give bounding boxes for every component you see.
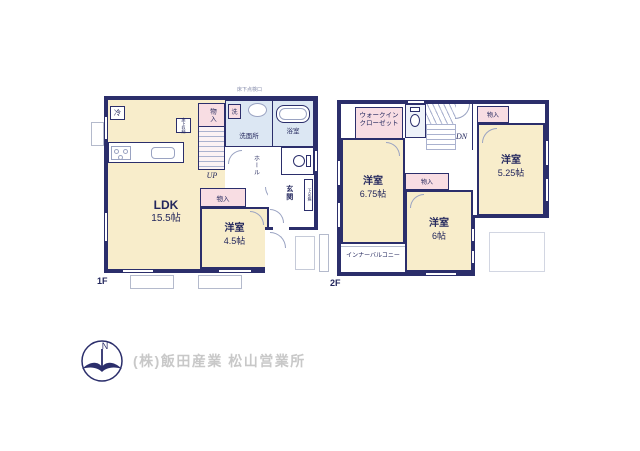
western-675-name: 洋室	[343, 176, 403, 189]
door-arc	[455, 104, 470, 119]
room-toilet-2f	[405, 104, 426, 138]
laundry-space: 洗	[228, 104, 241, 119]
door-arc	[410, 194, 424, 208]
closet-northeast: 物入	[477, 106, 509, 123]
closet-south: 物入	[200, 188, 246, 207]
shoe-box-label: 下足箱	[306, 188, 312, 201]
toilet-icon	[410, 114, 420, 127]
terrace-step	[130, 275, 174, 289]
western-6-size: 6帖	[407, 231, 471, 242]
western-525-name: 洋室	[479, 155, 543, 168]
refrigerator-label: 冷	[114, 108, 121, 118]
ldk-size: 15.5帖	[126, 213, 206, 226]
shoe-box: 下足箱	[304, 179, 313, 211]
exterior-notch	[472, 215, 549, 276]
window-marker	[104, 212, 108, 242]
western-room-size: 4.5帖	[202, 236, 267, 247]
window-marker	[218, 269, 252, 273]
window-marker	[407, 100, 425, 104]
floor-1-label: 1F	[97, 276, 108, 286]
room-western-4-5: 洋室 4.5帖	[200, 207, 269, 269]
porch-side-step	[319, 234, 329, 272]
room-western-6: 洋室 6帖	[405, 190, 473, 272]
room-washroom: 洗 洗面所	[225, 100, 273, 147]
window-marker	[545, 178, 549, 202]
wic-label-line1: ウォークイン	[356, 112, 402, 120]
stove-icon	[111, 146, 131, 160]
stairs-up-label: UP	[200, 171, 224, 181]
room-ldk-label: LDK 15.5帖	[126, 198, 206, 226]
ldk-name: LDK	[126, 198, 206, 213]
window-marker	[314, 150, 318, 172]
door-arc	[250, 211, 264, 225]
sink-icon	[248, 103, 267, 117]
bath-label: 浴室	[273, 128, 313, 136]
floor-2-plan: ウォークイン クローゼット DN 物入 洋室 5.25帖	[337, 100, 549, 276]
window-marker	[337, 160, 341, 186]
compass-icon: N	[79, 334, 125, 384]
window-marker	[337, 202, 341, 228]
underfloor-hatch-label: 床下点検口	[237, 86, 262, 93]
wic-label-line2: クローゼット	[356, 120, 402, 128]
window-marker	[545, 140, 549, 166]
underfloor-storage-box: 床下収納	[176, 118, 191, 133]
door-arc	[386, 142, 400, 156]
underfloor-storage-label: 床下収納	[180, 118, 187, 134]
refrigerator-box: 冷	[110, 106, 125, 120]
door-arc	[482, 128, 497, 143]
laundry-label: 洗	[231, 107, 237, 116]
kitchen-sink-icon	[151, 147, 175, 159]
porch-step	[295, 236, 315, 270]
toilet-tank-icon	[410, 107, 420, 112]
window-marker	[104, 116, 108, 140]
window-marker	[122, 269, 154, 273]
walk-in-closet: ウォークイン クローゼット	[355, 107, 403, 139]
compass-north-label: N	[102, 341, 109, 351]
washroom-label: 洗面所	[226, 133, 272, 141]
stairs-up	[198, 127, 225, 170]
floor-2-label: 2F	[330, 278, 341, 288]
closet-label: 物入	[207, 108, 217, 123]
room-bath: 浴室	[272, 100, 314, 147]
floor-1-plan: 冷 床下収納 物入 UP 洗 洗面所	[104, 96, 318, 273]
western-675-size: 6.75帖	[343, 189, 403, 200]
roof-line	[489, 232, 545, 272]
closet-ne-label: 物入	[487, 110, 499, 119]
inner-balcony: インナーバルコニー	[341, 246, 405, 272]
entrance-label: 玄関	[284, 185, 293, 201]
toilet-icon	[293, 155, 305, 167]
closet-center: 物入	[405, 173, 449, 190]
floor-plan-page: 床下点検口 冷 床下収納 物入 UP	[0, 0, 640, 451]
door-arc	[228, 150, 242, 164]
closet-center-label: 物入	[421, 177, 433, 186]
bathtub-icon	[276, 105, 310, 123]
stairs-down-label: DN	[456, 132, 467, 142]
window-marker	[471, 250, 475, 264]
closet-by-stairs: 物入	[198, 103, 225, 127]
door-arc	[270, 209, 284, 223]
hall-label: ホール	[251, 155, 259, 176]
room-entrance: 玄関 下足箱	[268, 175, 314, 228]
western-6-name: 洋室	[407, 218, 471, 231]
room-toilet	[281, 147, 314, 175]
room-western-5-25: 洋室 5.25帖	[477, 123, 545, 216]
company-name: (株)飯田産業 松山営業所	[133, 351, 306, 371]
kitchen-counter	[108, 142, 184, 163]
exterior-step	[91, 122, 104, 146]
terrace-step	[198, 275, 242, 289]
door-arc	[270, 232, 286, 248]
stairs-down: DN	[426, 104, 473, 150]
window-marker	[425, 272, 457, 276]
room-western-6-75: 洋室 6.75帖	[341, 138, 405, 244]
window-marker	[471, 228, 475, 242]
toilet-tank-icon	[306, 155, 311, 167]
inner-balcony-label: インナーバルコニー	[341, 253, 405, 261]
closet-south-label: 物入	[217, 193, 230, 203]
entrance-porch	[265, 227, 318, 273]
western-525-size: 5.25帖	[479, 168, 543, 179]
